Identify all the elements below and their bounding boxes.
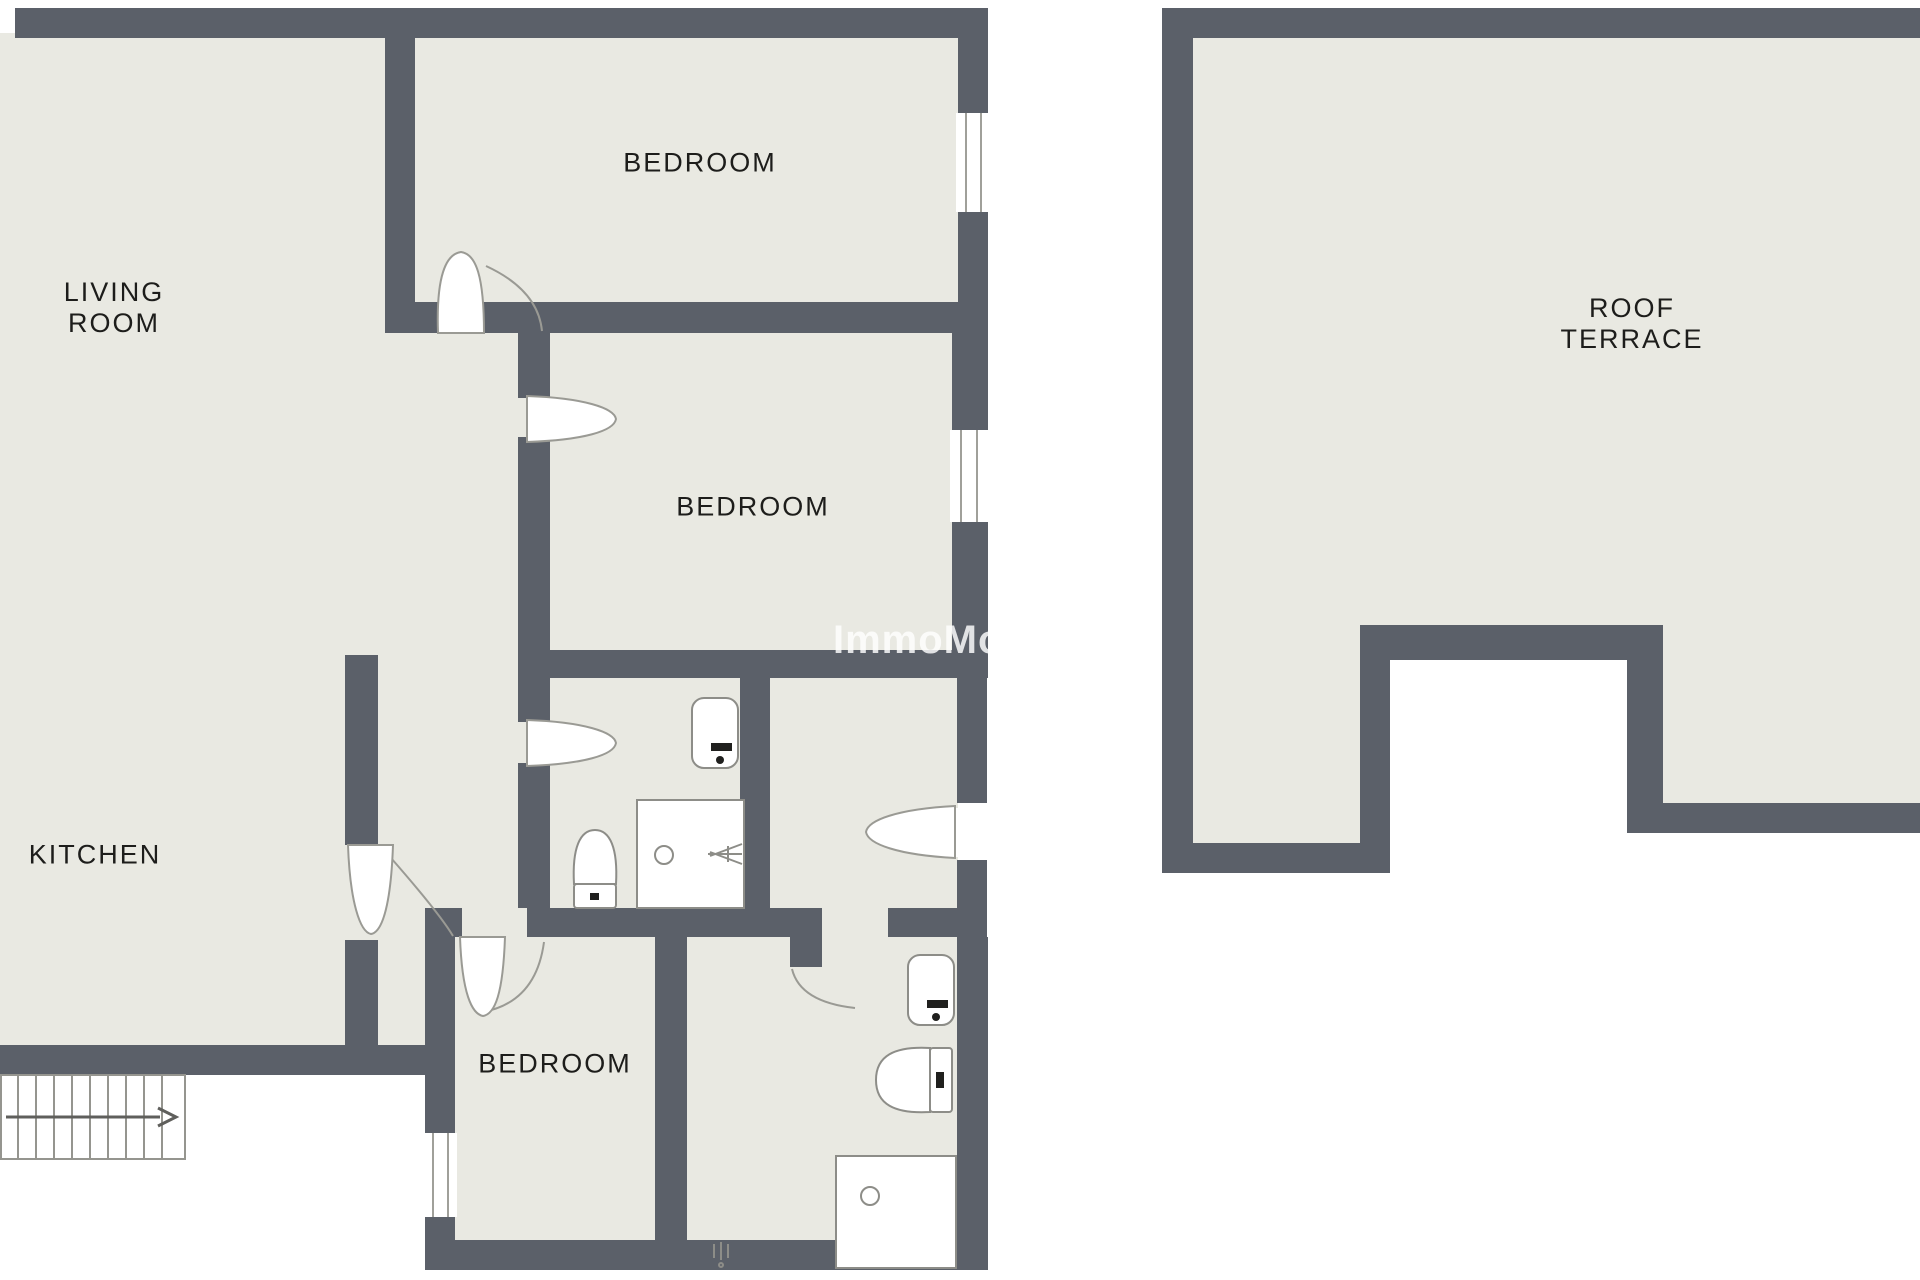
sink-icon <box>692 698 738 768</box>
room-label-living-room: LIVING ROOM <box>64 277 165 339</box>
watermark: ImmoMoment <box>833 618 1103 663</box>
room-label-bedroom-top: BEDROOM <box>623 148 777 179</box>
room-label-kitchen: KITCHEN <box>29 840 162 871</box>
toilet-icon <box>574 830 617 908</box>
floor-plan: LIVING ROOM BEDROOM BEDROOM BEDROOM KITC… <box>0 0 1920 1280</box>
room-label-bedroom-bottom: BEDROOM <box>478 1049 632 1080</box>
window-icon <box>950 430 990 522</box>
window-icon <box>956 113 990 212</box>
room-label-roof-terrace: ROOF TERRACE <box>1560 293 1703 355</box>
toilet-icon <box>876 1048 952 1112</box>
room-label-bedroom-middle: BEDROOM <box>676 492 830 523</box>
stairs-icon <box>1 1075 185 1159</box>
sink-icon <box>908 955 954 1025</box>
window-icon <box>423 1133 457 1217</box>
shower-icon <box>637 800 744 908</box>
roof-terrace-structure <box>1162 8 1920 873</box>
